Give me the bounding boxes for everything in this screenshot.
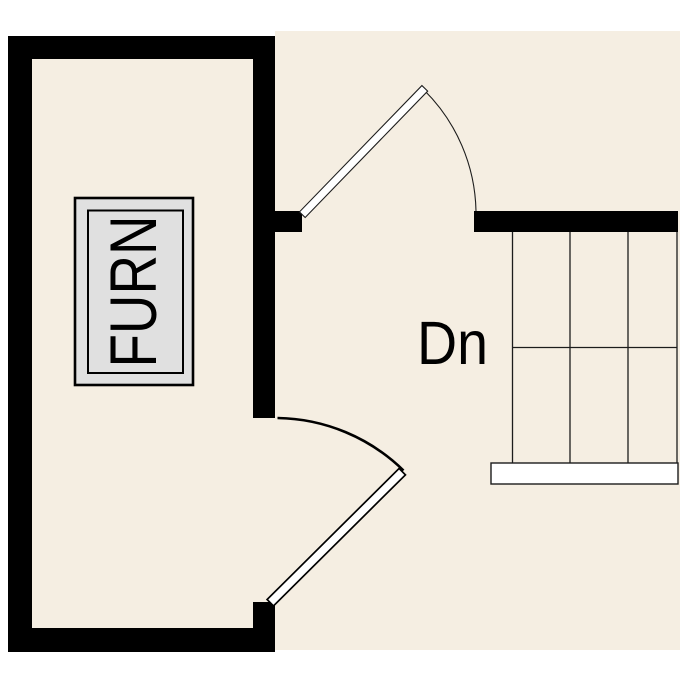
floor-plan: Dn FURN xyxy=(0,0,687,687)
furnace-unit: FURN xyxy=(75,198,193,385)
hallway-wall xyxy=(474,211,678,232)
lower-doorway-opening xyxy=(253,418,275,602)
stairs-down-label: Dn xyxy=(417,309,488,377)
upper-door-jamb xyxy=(275,211,302,232)
stair-landing xyxy=(491,463,678,484)
furnace-label: FURN xyxy=(96,216,170,368)
floor-plan-canvas: Dn FURN xyxy=(0,0,687,687)
